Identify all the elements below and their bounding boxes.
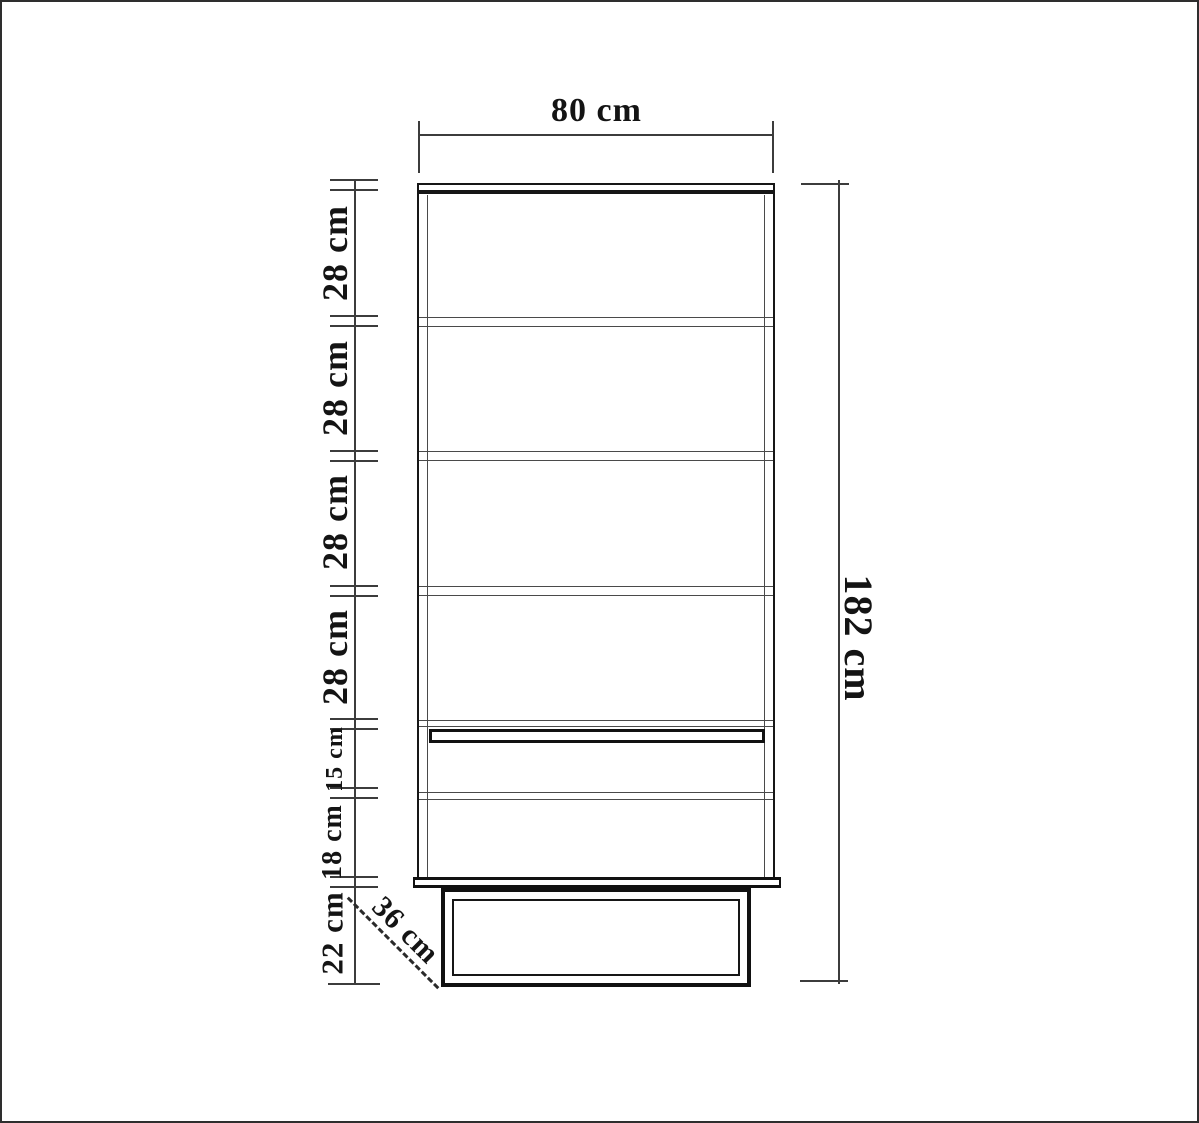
left-tick [330, 325, 378, 327]
height-dimension-tick-bottom [800, 980, 848, 982]
left-segment-label-4: 28 cm [317, 609, 353, 705]
left-tick [330, 718, 378, 720]
left-tick [330, 595, 378, 597]
shelf-line [419, 720, 773, 721]
left-tick [330, 450, 378, 452]
shelf-line [419, 317, 773, 318]
cabinet-top-panel [419, 190, 773, 194]
left-segment-label-7: 22 cm [317, 891, 348, 974]
left-tick [330, 797, 378, 799]
left-tick [330, 179, 378, 181]
shelf-line [419, 586, 773, 587]
width-dimension-label: 80 cm [419, 94, 774, 128]
height-dimension-label: 182 cm [838, 574, 878, 701]
left-segment-label-2: 28 cm [317, 340, 353, 436]
left-tick [330, 585, 378, 587]
shelf-line [419, 326, 773, 327]
shelf-line [419, 792, 773, 793]
left-segment-label-6: 18 cm [319, 804, 347, 880]
cabinet-right-wall-inner-line [764, 195, 765, 877]
shelf-line [419, 595, 773, 596]
left-chain-end-tick [328, 983, 380, 985]
width-dimension-line [419, 134, 774, 136]
left-segment-label-3: 28 cm [317, 474, 353, 570]
shelf-line [419, 799, 773, 800]
cabinet-outline [417, 183, 775, 879]
depth-dimension-label: 36 cm [366, 890, 446, 970]
shelf-line [419, 726, 773, 727]
shelf-line [419, 451, 773, 452]
left-tick [330, 460, 378, 462]
height-dimension-tick-top [801, 183, 849, 185]
width-dimension-tick-right [772, 121, 774, 173]
plinth-base-outline [441, 888, 751, 987]
shelf-line [419, 460, 773, 461]
cabinet-left-wall-inner-line [427, 195, 428, 877]
width-dimension-tick-left [418, 121, 420, 173]
plinth-base-inner-line [452, 899, 740, 976]
left-tick [330, 189, 378, 191]
left-segment-label-1: 28 cm [317, 205, 353, 301]
drawer-front-rail [429, 729, 765, 743]
left-segment-label-5: 15 cm [323, 726, 347, 792]
technical-drawing-canvas: 80 cm 28 cm 28 cm 28 cm 28 cm 15 cm 18 c… [0, 0, 1199, 1123]
left-tick [330, 315, 378, 317]
cabinet-bottom-board [413, 877, 781, 888]
